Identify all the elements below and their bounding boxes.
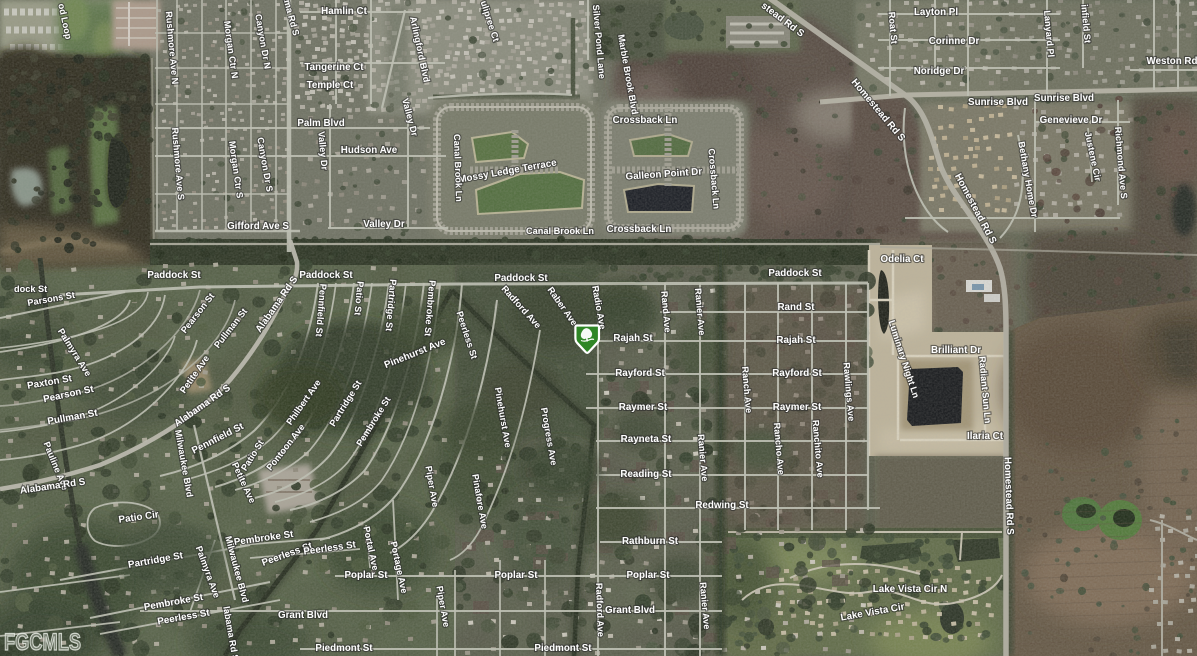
svg-text:Ilaria Ct: Ilaria Ct — [967, 431, 1004, 442]
svg-text:Brilliant Dr: Brilliant Dr — [931, 345, 981, 356]
svg-text:Odelia Ct: Odelia Ct — [880, 254, 924, 265]
svg-text:Palm Blvd: Palm Blvd — [297, 118, 344, 129]
svg-text:Raymer St: Raymer St — [773, 402, 822, 413]
svg-text:Radford Ave: Radford Ave — [594, 583, 606, 637]
svg-text:dock St: dock St — [14, 284, 47, 294]
svg-text:Rand St: Rand St — [777, 302, 815, 313]
svg-text:Rayford St: Rayford St — [772, 368, 822, 379]
svg-text:Layton Pl: Layton Pl — [914, 7, 958, 18]
svg-text:Rayford St: Rayford St — [615, 368, 665, 379]
svg-text:Grant Blvd: Grant Blvd — [605, 605, 655, 616]
svg-text:Paddock St: Paddock St — [299, 270, 353, 281]
svg-text:Paddock St: Paddock St — [768, 268, 822, 279]
svg-text:Redwing St: Redwing St — [695, 500, 749, 511]
svg-text:Poplar St: Poplar St — [626, 570, 670, 581]
svg-text:Noridge Dr: Noridge Dr — [914, 66, 965, 77]
svg-text:Rajah St: Rajah St — [776, 335, 816, 346]
svg-text:Gifford Ave S: Gifford Ave S — [227, 221, 289, 232]
svg-text:Corinne Dr: Corinne Dr — [929, 36, 980, 47]
svg-text:FGCMLS: FGCMLS — [4, 629, 81, 656]
svg-text:Temple Ct: Temple Ct — [307, 80, 354, 91]
svg-text:Hudson Ave: Hudson Ave — [341, 145, 398, 156]
svg-text:Paddock St: Paddock St — [494, 273, 548, 284]
svg-text:Rathburn St: Rathburn St — [622, 536, 679, 547]
svg-text:Canal Brook Ln: Canal Brook Ln — [526, 226, 594, 236]
svg-text:Raymer St: Raymer St — [619, 402, 668, 413]
svg-text:Poplar St: Poplar St — [344, 570, 388, 581]
svg-text:Crossback Ln: Crossback Ln — [607, 224, 672, 235]
svg-text:Rayneta St: Rayneta St — [621, 434, 672, 445]
svg-text:Grant Blvd: Grant Blvd — [278, 610, 328, 621]
svg-text:Piedmont St: Piedmont St — [534, 643, 592, 654]
svg-text:Tangerine Ct: Tangerine Ct — [304, 62, 364, 73]
svg-text:Hamlin Ct: Hamlin Ct — [321, 6, 367, 17]
svg-text:Valley Dr: Valley Dr — [363, 219, 405, 230]
svg-text:Genevieve Dr: Genevieve Dr — [1040, 115, 1103, 126]
svg-text:Sunrise Blvd: Sunrise Blvd — [968, 97, 1028, 108]
svg-text:Lake Vista Cir N: Lake Vista Cir N — [873, 584, 947, 595]
svg-text:Weston Rd: Weston Rd — [1147, 56, 1197, 67]
svg-text:Poplar St: Poplar St — [494, 570, 538, 581]
svg-text:Reading St: Reading St — [620, 469, 672, 480]
svg-text:Sunrise Blvd: Sunrise Blvd — [1034, 93, 1094, 104]
svg-text:Rajah St: Rajah St — [613, 333, 653, 344]
svg-text:Crossback Ln: Crossback Ln — [613, 115, 678, 126]
svg-text:Piedmont St: Piedmont St — [315, 643, 373, 654]
svg-text:Paddock St: Paddock St — [147, 270, 201, 281]
